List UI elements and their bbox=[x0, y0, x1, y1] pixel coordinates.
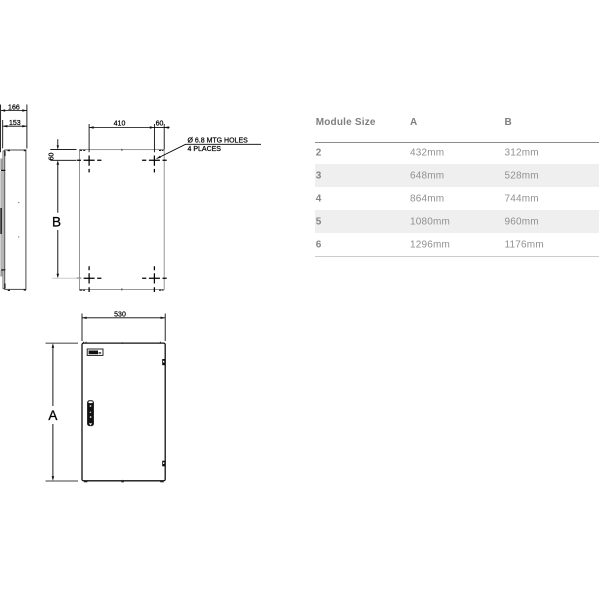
svg-text:410: 410 bbox=[114, 121, 126, 128]
svg-text:60: 60 bbox=[156, 121, 164, 128]
svg-text:Ø 6.8 MTG HOLES: Ø 6.8 MTG HOLES bbox=[188, 138, 249, 145]
svg-text:B: B bbox=[52, 214, 61, 229]
svg-text:60: 60 bbox=[49, 153, 56, 161]
svg-text:A: A bbox=[48, 408, 57, 423]
svg-text:153: 153 bbox=[9, 120, 21, 127]
svg-text:4 PLACES: 4 PLACES bbox=[188, 146, 222, 153]
svg-text:166: 166 bbox=[8, 104, 20, 111]
svg-text:530: 530 bbox=[114, 311, 126, 318]
